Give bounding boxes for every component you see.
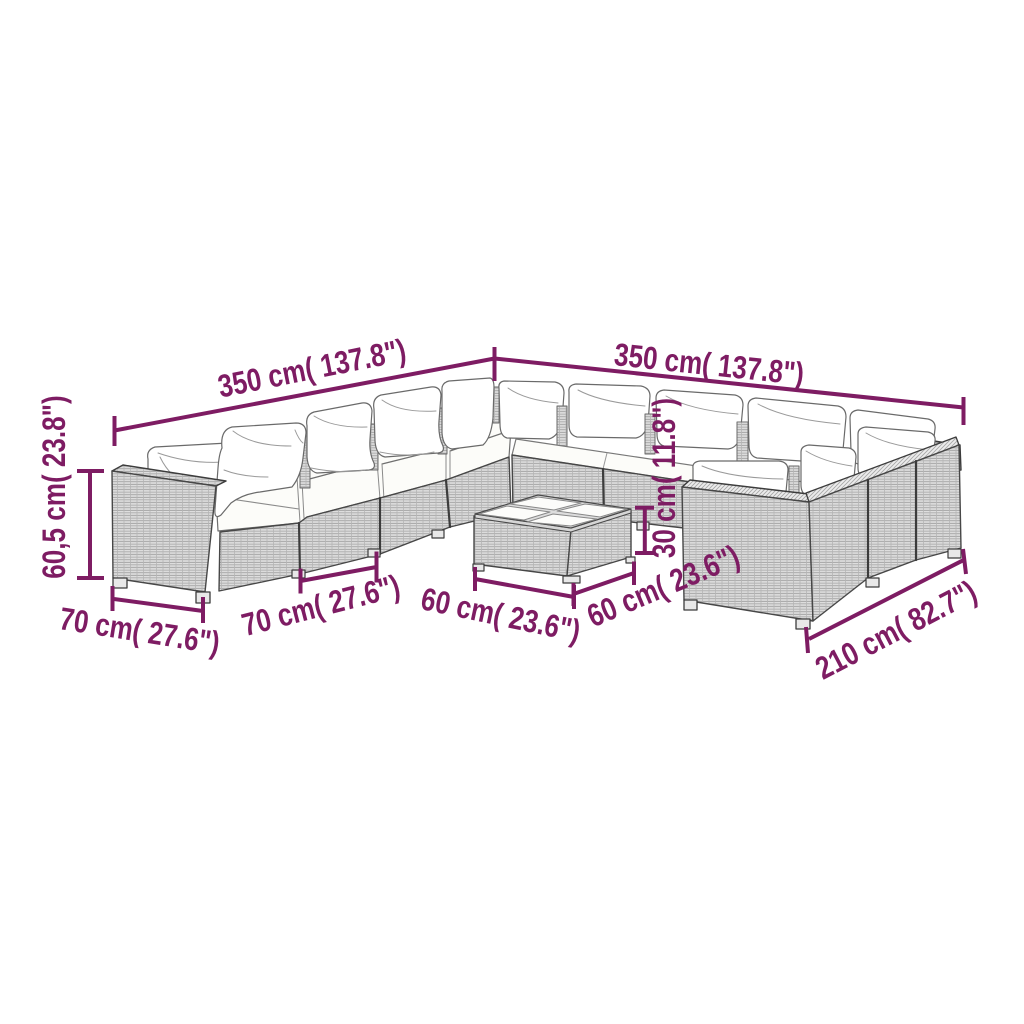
svg-text:60,5 cm( 23.8"): 60,5 cm( 23.8") [38,395,73,578]
svg-text:30 cm( 11.8"): 30 cm( 11.8") [648,398,683,558]
